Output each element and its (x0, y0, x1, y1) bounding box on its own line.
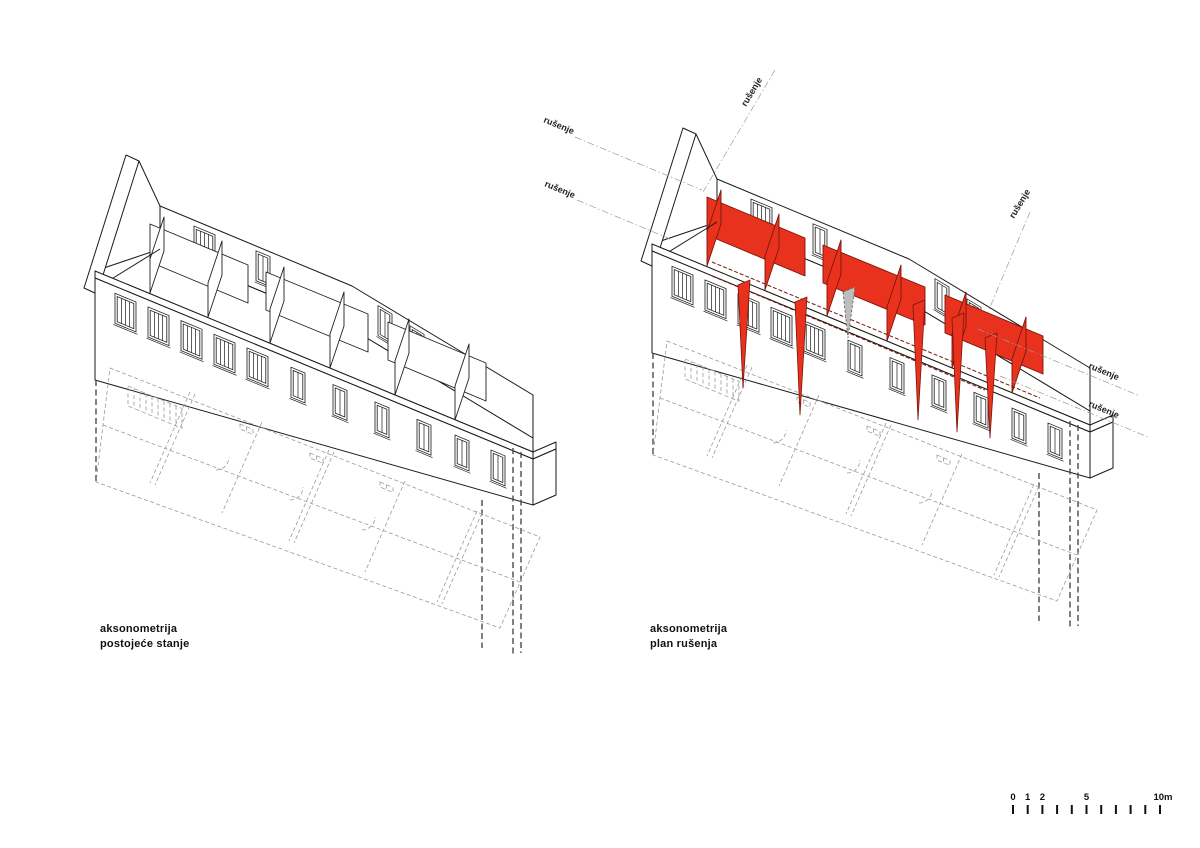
left-caption-line2: postojeće stanje (100, 638, 189, 650)
annotation-rusenje: rušenje (1087, 361, 1120, 382)
drawing-sheet: rušenje rušenje rušenje rušenje rušenje … (0, 0, 1200, 848)
annotation-rusenje: rušenje (543, 179, 576, 200)
leader-line (703, 70, 775, 192)
annotation-rusenje: rušenje (1087, 399, 1120, 420)
scale-label-5: 5 (1084, 792, 1090, 803)
annotation-rusenje: rušenje (739, 75, 764, 108)
scale-label-10m: 10m (1153, 792, 1172, 803)
right-caption-line2: plan rušenja (650, 638, 718, 650)
scale-label-2: 2 (1040, 792, 1045, 803)
architectural-drawing-canvas: rušenje rušenje rušenje rušenje rušenje … (0, 0, 1200, 848)
leader-line (988, 212, 1030, 312)
right-caption: aksonometrija plan rušenja (650, 623, 728, 650)
existing-state-drawing (84, 155, 556, 656)
scale-bar: 0 1 2 5 10m (1010, 792, 1172, 814)
left-caption-line1: aksonometrija (100, 623, 178, 635)
scale-label-1: 1 (1025, 792, 1031, 803)
demolition-plan-drawing: rušenje rušenje rušenje rušenje rušenje … (542, 70, 1148, 629)
annotation-rusenje: rušenje (542, 115, 575, 136)
left-caption: aksonometrija postojeće stanje (100, 623, 189, 650)
right-caption-line1: aksonometrija (650, 623, 728, 635)
scale-label-0: 0 (1010, 792, 1015, 803)
